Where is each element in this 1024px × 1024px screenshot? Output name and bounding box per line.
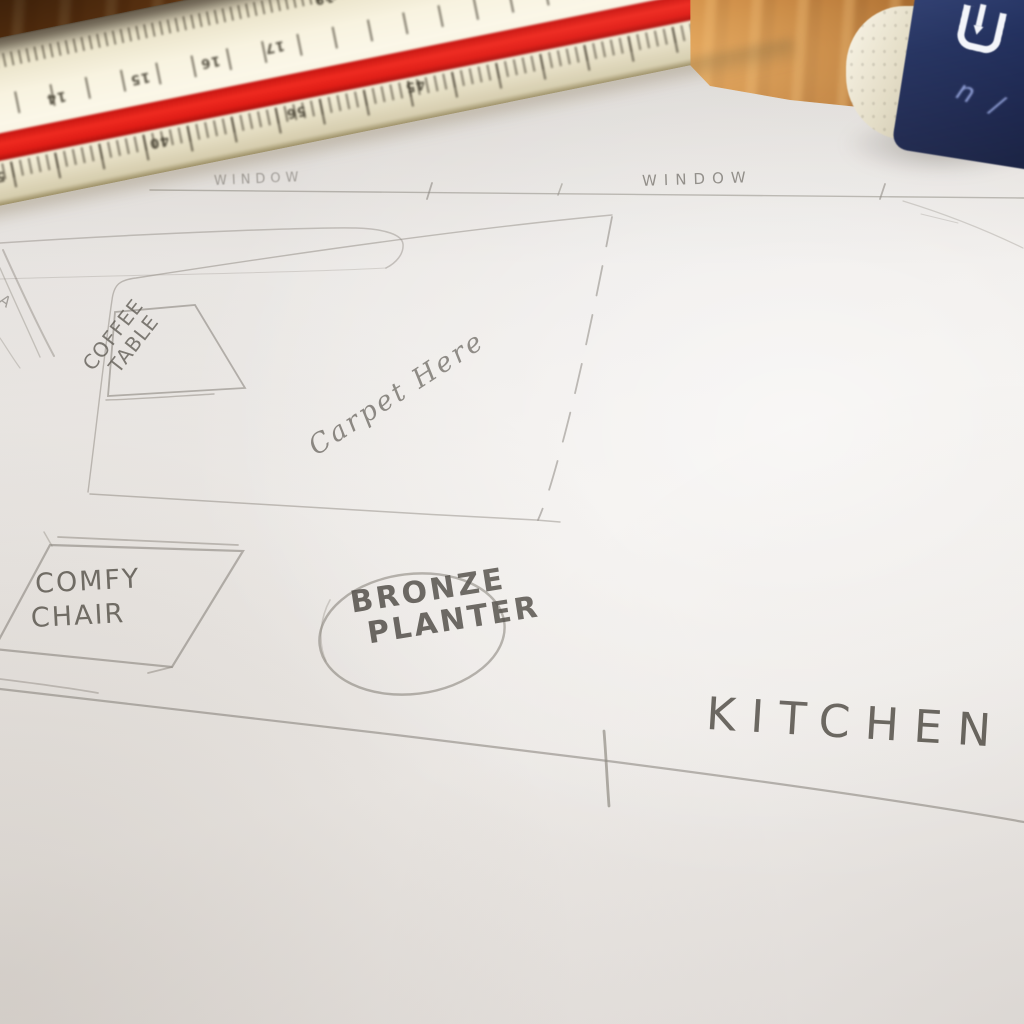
label-comfy-chair-line2: CHAIR bbox=[30, 596, 143, 636]
left-wall-stub bbox=[0, 338, 20, 368]
label-window-right: WINDOW bbox=[642, 168, 753, 190]
carpet-right-dashed bbox=[538, 217, 612, 520]
label-comfy-chair: COMFY CHAIR bbox=[34, 562, 143, 635]
left-wall-inner bbox=[0, 268, 40, 357]
label-comfy-chair-line1: COMFY bbox=[34, 562, 141, 601]
planter-circle-overdraw bbox=[321, 600, 330, 661]
top-wall-line bbox=[150, 190, 1024, 198]
comfy-chair-doubled-top bbox=[58, 537, 238, 545]
top-right-wall bbox=[903, 201, 1023, 248]
photo-of-floor-plan-sketch: WINDOW WINDOW A COFFEE TABLE Carpet Here… bbox=[0, 0, 1024, 1024]
eraser-pen-marks: n / bbox=[952, 75, 1013, 124]
eraser-brand-logo-icon bbox=[954, 4, 1007, 56]
ruler-number: 19 bbox=[312, 0, 335, 7]
comfy-chair-tail bbox=[148, 667, 172, 673]
carpet-bottom bbox=[90, 494, 560, 522]
pencil-icon bbox=[976, 4, 987, 27]
carpet-left-top bbox=[88, 215, 612, 492]
left-wall-outer bbox=[3, 250, 54, 356]
window-tick-1 bbox=[427, 183, 432, 199]
comfy-chair-corner-overshoot bbox=[44, 532, 52, 546]
top-right-wall-inner bbox=[921, 214, 958, 223]
kitchen-tick bbox=[604, 731, 609, 806]
